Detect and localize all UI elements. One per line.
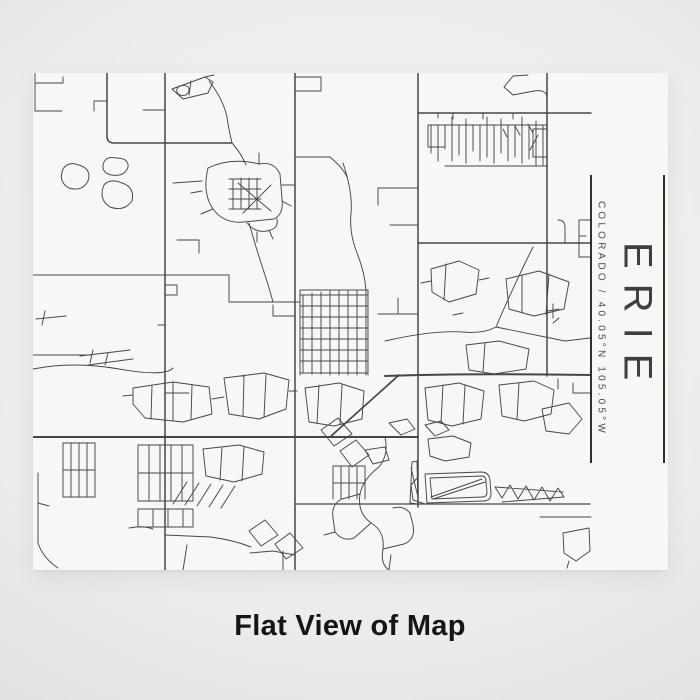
poster-subtitle: COLORADO / 40.05°N 105.05°W bbox=[596, 201, 607, 436]
title-rule-right bbox=[663, 175, 665, 463]
product-preview: COLORADO / 40.05°N 105.05°W ERIE Flat Vi… bbox=[0, 0, 700, 700]
map-poster: COLORADO / 40.05°N 105.05°W ERIE bbox=[33, 73, 668, 570]
view-caption: Flat View of Map bbox=[0, 610, 700, 643]
poster-title: ERIE bbox=[615, 242, 660, 395]
poster-title-block: COLORADO / 40.05°N 105.05°W ERIE bbox=[592, 175, 663, 463]
street-map-graphic bbox=[33, 73, 668, 570]
roads-minor-layer bbox=[33, 73, 591, 570]
